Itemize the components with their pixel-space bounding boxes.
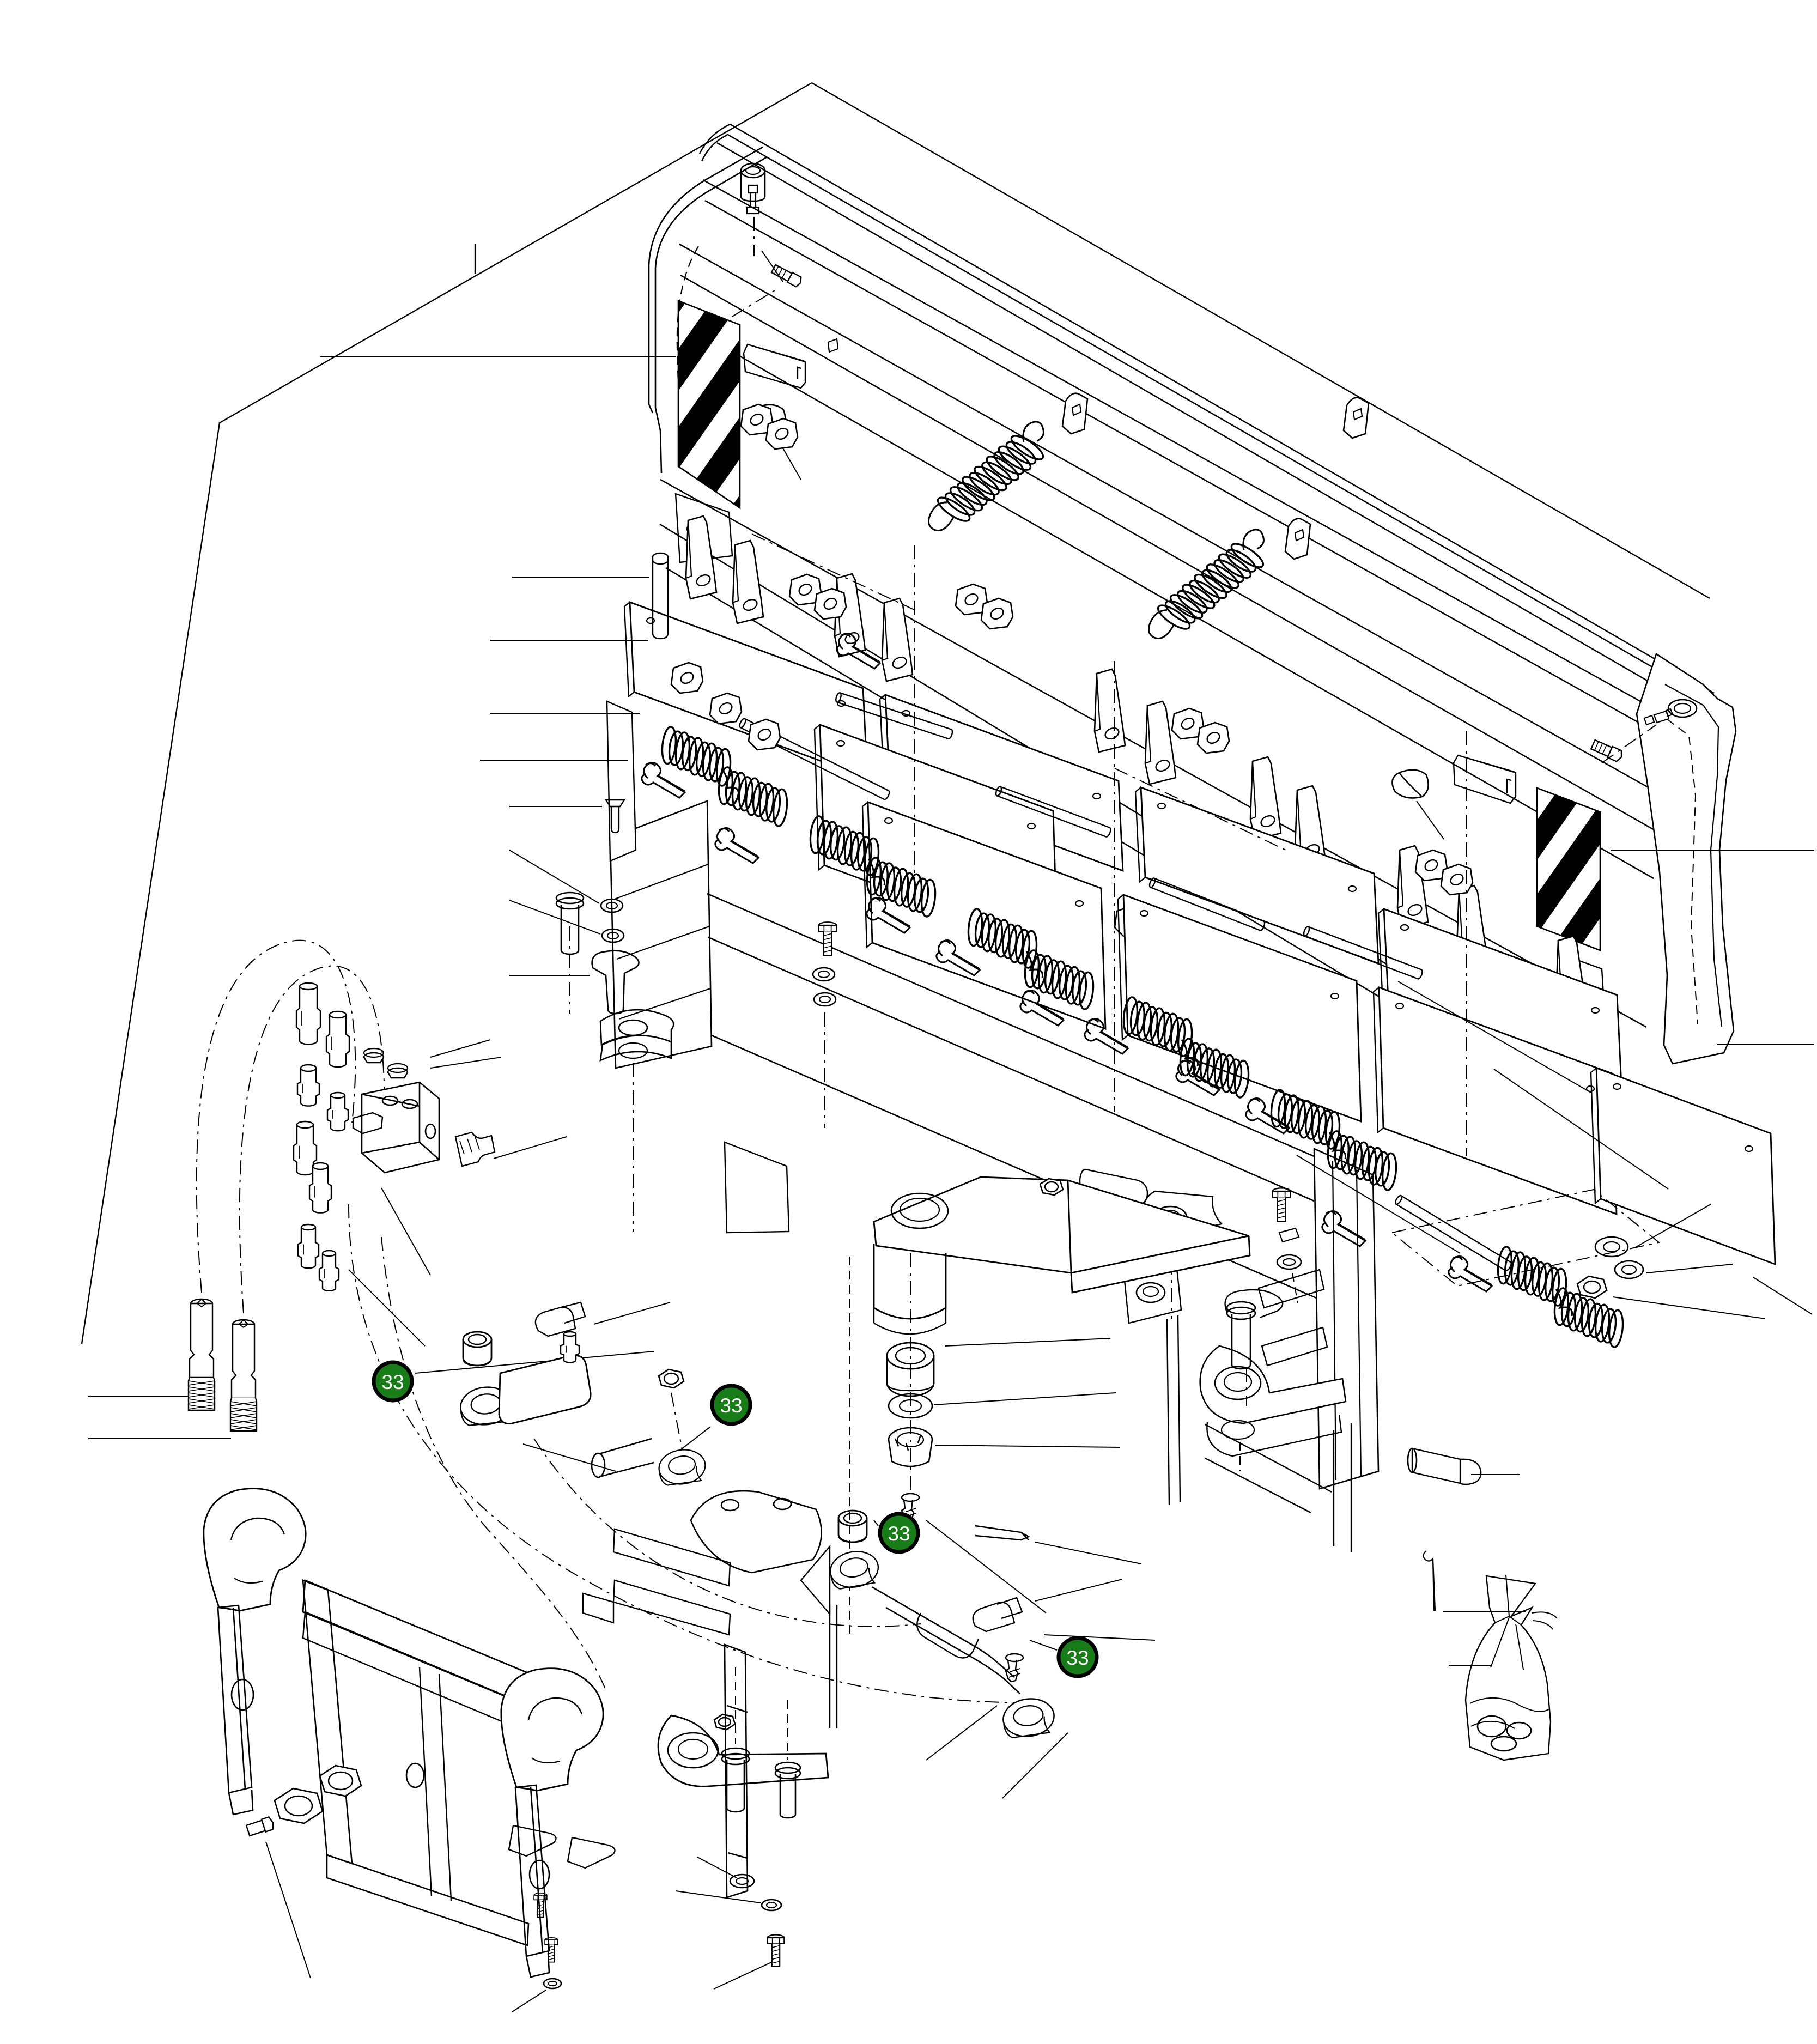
svg-text:33: 33 (1066, 1647, 1089, 1669)
svg-text:33: 33 (720, 1394, 742, 1417)
svg-text:33: 33 (888, 1523, 910, 1545)
svg-text:33: 33 (381, 1371, 404, 1393)
